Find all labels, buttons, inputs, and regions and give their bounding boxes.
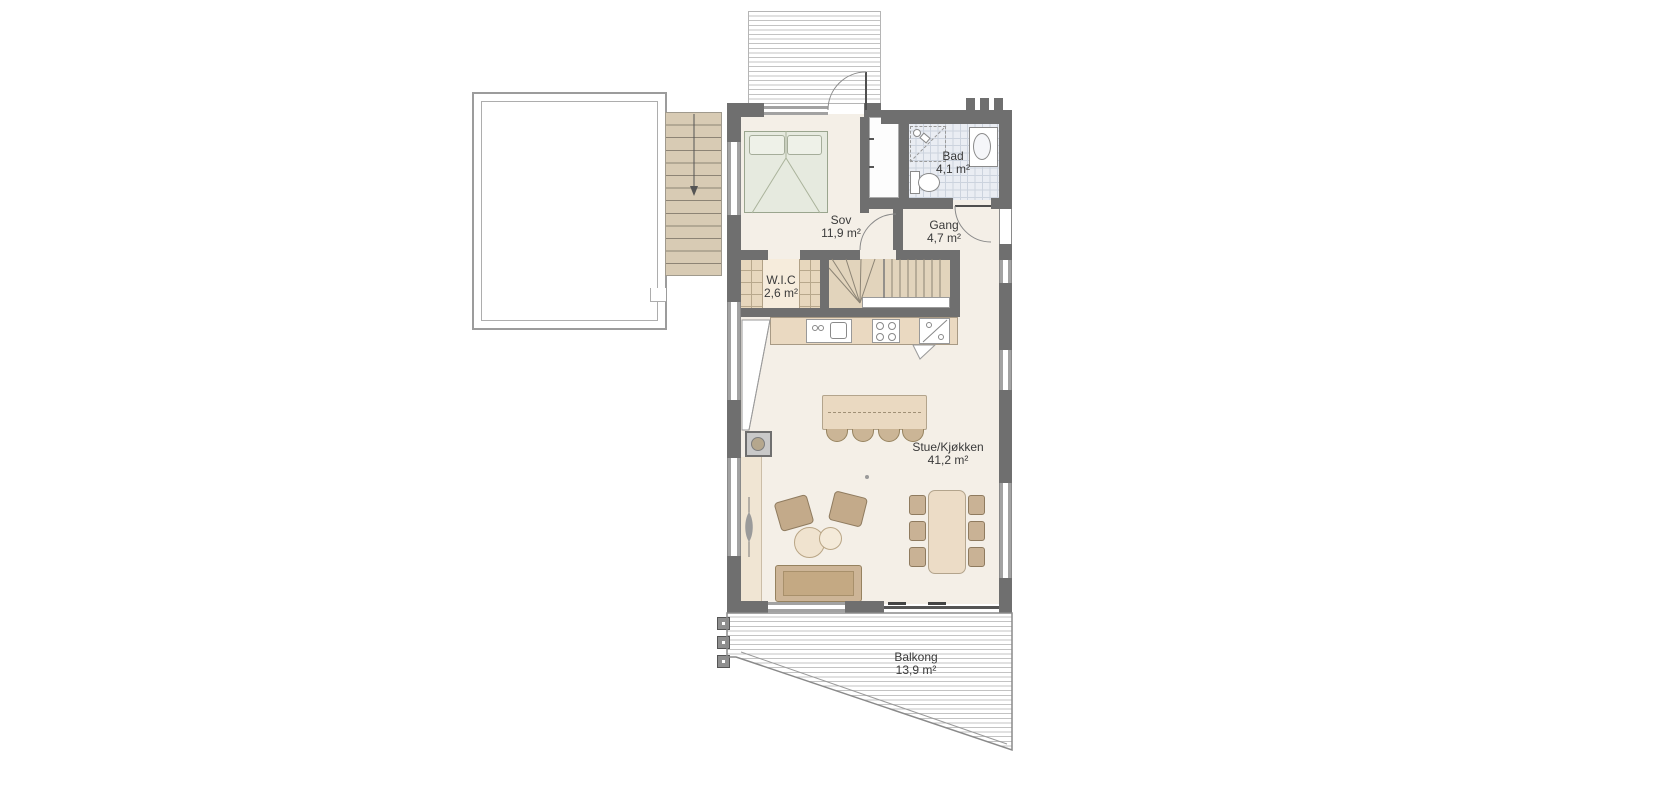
balcony-outline: [727, 613, 1012, 750]
bathroom-door: [955, 206, 991, 242]
closet-door-marks: [869, 138, 874, 168]
bedroom-door: [860, 214, 896, 250]
window-pivot-symbol: [745, 497, 753, 557]
sliding-door-marks: [888, 602, 946, 605]
faucet-symbol: [813, 326, 824, 331]
bed-fold-lines: [752, 131, 820, 213]
plan-linework: [0, 0, 1670, 800]
floor-point: [865, 475, 869, 479]
stair-arrow: [690, 114, 698, 196]
entrance-door: [828, 72, 866, 110]
corner-unit-symbol: [913, 320, 947, 359]
shower-symbol: [910, 126, 946, 162]
stove-burners: [877, 323, 896, 341]
floor-plan: Sov 11,9 m² Bad 4,1 m² Gang 4,7 m² W.I.C…: [0, 0, 1670, 800]
open-below-wedge: [742, 320, 770, 430]
